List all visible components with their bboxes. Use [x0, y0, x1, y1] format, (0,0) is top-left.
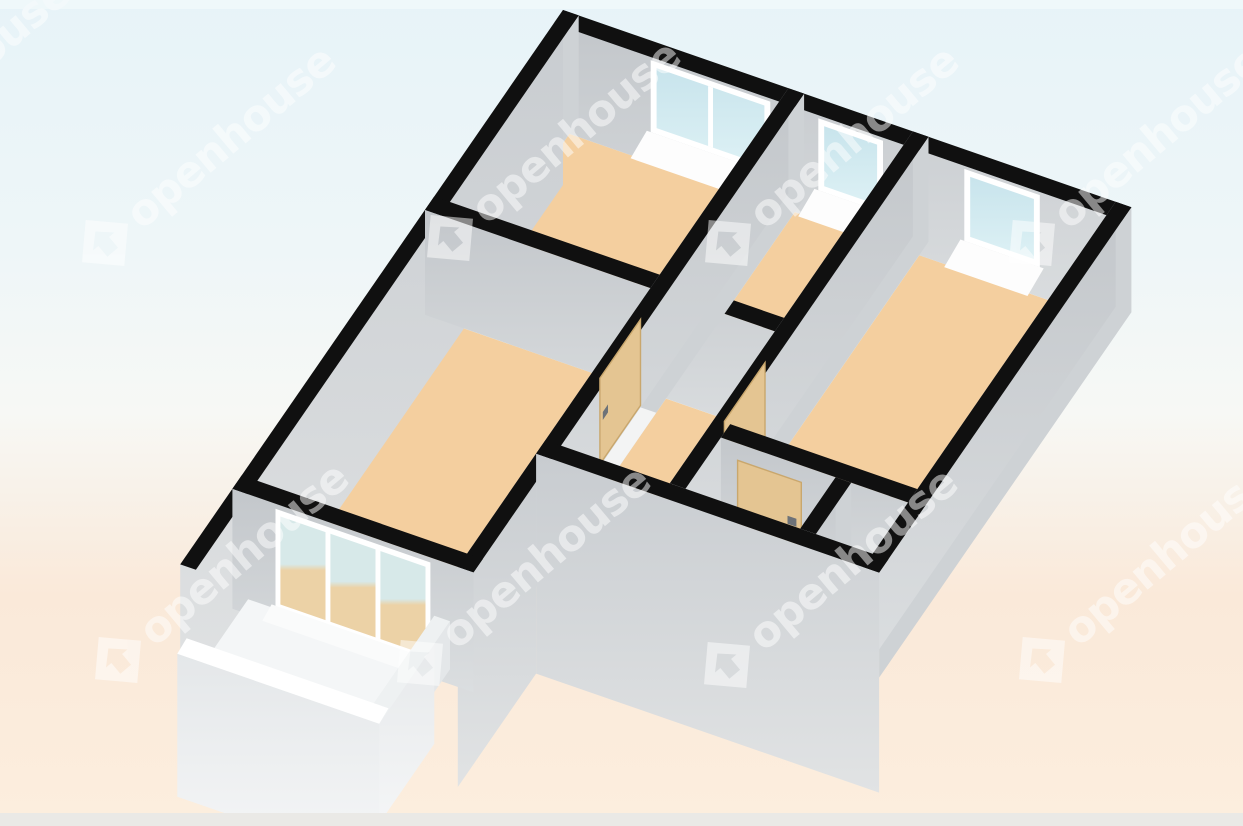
- balcony-door-pane: [330, 534, 375, 638]
- image-edge-strip-bottom: [0, 813, 1243, 826]
- image-edge-strip-top: [0, 0, 1243, 9]
- floor-plan-3d-svg: openhouseopenhouseopenhouseopenhouseopen…: [0, 0, 1243, 826]
- window-bedroom-top-left-mullion: [708, 86, 713, 148]
- floor-plan-figure: openhouseopenhouseopenhouseopenhouseopen…: [0, 0, 1243, 826]
